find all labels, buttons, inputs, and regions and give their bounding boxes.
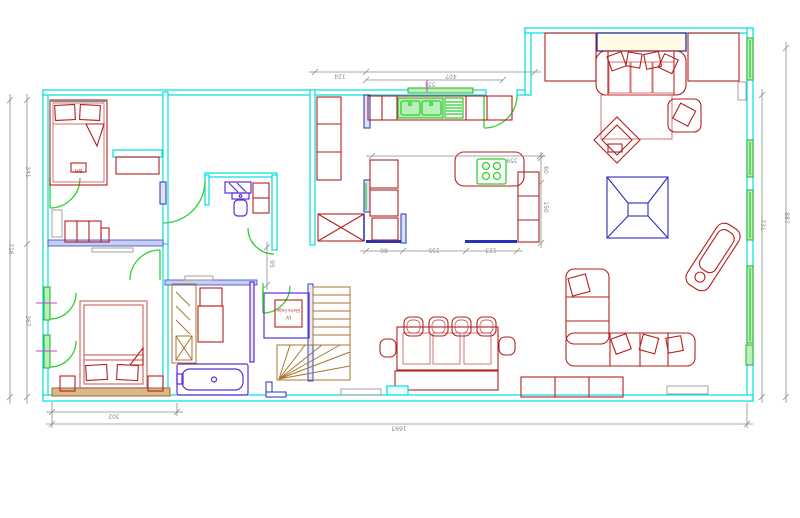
dim-bottom-left: 302 — [108, 413, 120, 420]
bath-cabinets — [198, 288, 223, 342]
dim-left-overall: 716 — [7, 243, 14, 255]
toilet — [232, 193, 249, 216]
cooktop — [477, 159, 506, 184]
double-bed-2 — [80, 301, 147, 388]
tall-cabinet — [317, 97, 341, 180]
window-right-3 — [747, 190, 753, 240]
fridge-stack — [370, 160, 398, 240]
cabinet-left — [545, 33, 596, 81]
door-bedroom-1 — [50, 178, 80, 208]
dim-clearance: 359 — [506, 157, 518, 164]
doors — [50, 95, 517, 313]
headboard-shelf — [52, 388, 170, 396]
island-counter-return — [518, 172, 539, 242]
window-right-2 — [747, 140, 753, 177]
dim-seg-b: 155 — [428, 247, 440, 254]
washbasin — [225, 182, 251, 193]
kitchen-counter — [368, 96, 512, 120]
linen-wardrobe — [172, 284, 196, 363]
window-right-5 — [746, 345, 753, 365]
dim-seg-c: 123 — [485, 247, 497, 254]
dining-bench — [395, 371, 498, 390]
skylight — [607, 177, 668, 238]
hall-shelf — [92, 248, 133, 252]
open-door-leaf — [52, 210, 62, 237]
dim-seg-a: 80 — [380, 247, 388, 254]
dim-top-sub: 331 — [424, 81, 436, 88]
wc-cabinet — [253, 183, 269, 213]
drainboard — [445, 98, 463, 118]
dim-left-lower: 367 — [24, 315, 31, 327]
sideboard — [521, 377, 623, 397]
dim-top-left: 124 — [334, 73, 346, 80]
laundry-label-line1: Sèche-linge — [276, 308, 300, 313]
door-bedroom-2 — [130, 250, 160, 280]
bed-bench — [113, 150, 162, 174]
staircase — [277, 287, 350, 380]
window-right-4 — [747, 266, 753, 343]
window-right-1 — [747, 38, 753, 80]
drawer-chest — [65, 221, 109, 242]
bathtub — [177, 364, 248, 395]
dim-right-inner: 731 — [759, 219, 766, 231]
chaise-longue — [682, 220, 743, 295]
bedroom-1 — [50, 100, 162, 252]
dining-chair-right — [499, 337, 515, 355]
bedroom-2 — [52, 301, 170, 396]
tv-console — [597, 33, 686, 51]
wall-shelf-stairs — [341, 389, 381, 395]
floor-plan-canvas: 124 407 331 716 341 367 731 887 302 1693… — [0, 0, 800, 518]
shaft-x-box — [318, 214, 364, 241]
dim-counter: 150 — [542, 201, 549, 213]
wall-shelf-right — [667, 386, 708, 394]
cabinet-right — [688, 33, 739, 81]
interior-walls — [48, 90, 517, 397]
dim-gap: 60 — [542, 166, 549, 174]
double-sink — [398, 98, 443, 118]
window-left-1 — [36, 287, 76, 320]
dim-top-right: 407 — [445, 73, 457, 80]
bathroom — [172, 276, 248, 395]
threshold — [387, 386, 408, 395]
sectional-sofa — [566, 269, 695, 366]
dim-left-upper: 341 — [24, 166, 31, 178]
dim-bottom-overall: 1693 — [391, 425, 406, 432]
armchair — [668, 99, 701, 132]
kitchen — [317, 96, 539, 242]
bed-tag-label: BH — [75, 167, 82, 173]
dim-hall: 95 — [268, 260, 275, 268]
wc-room — [225, 182, 269, 216]
kitchen-window-sill — [408, 88, 473, 93]
dim-right-outer: 887 — [783, 212, 790, 224]
doorbell-box — [738, 82, 746, 100]
door-hall-passage — [248, 228, 274, 254]
floor-plan-drawing: 124 407 331 716 341 367 731 887 302 1693… — [0, 0, 800, 518]
dining-chair-left — [380, 339, 396, 357]
rug — [601, 95, 672, 139]
sofa — [596, 51, 686, 95]
dining-set — [380, 317, 515, 390]
window-left-2 — [36, 335, 76, 368]
bath-shelf — [185, 276, 213, 280]
living-room — [545, 33, 744, 294]
laundry-label-line2: LV — [285, 314, 291, 320]
